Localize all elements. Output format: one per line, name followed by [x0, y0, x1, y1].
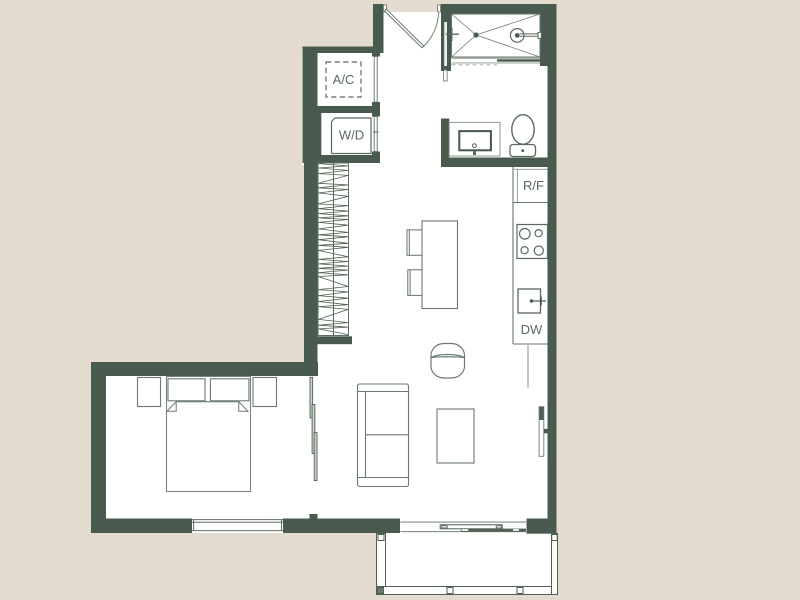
svg-text:W/D: W/D: [339, 128, 364, 143]
svg-text:DW: DW: [521, 322, 543, 337]
svg-text:R/F: R/F: [523, 178, 544, 193]
svg-text:A/C: A/C: [333, 72, 355, 87]
